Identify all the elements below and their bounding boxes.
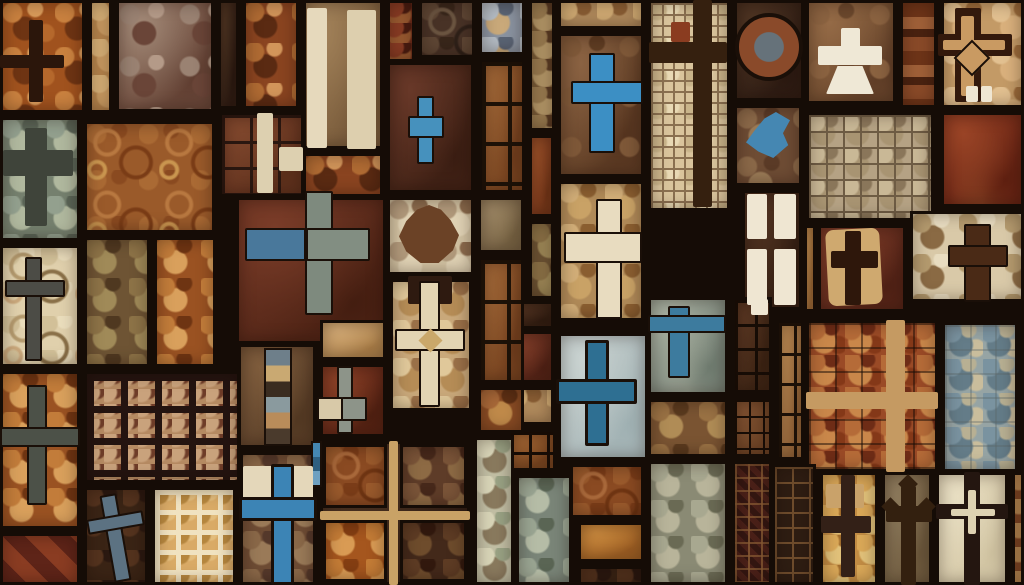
- swirl-cross-arm: [5, 280, 65, 297]
- panel-rust-marble: [941, 112, 1024, 207]
- white-nub: [751, 299, 768, 315]
- tile-cross-stem: [693, 0, 712, 207]
- panel-quad-br: [400, 520, 467, 582]
- cream-bar-right: [347, 10, 376, 149]
- panel-pebble-mosaic: [648, 461, 728, 585]
- panel-dark-trellis: [772, 464, 816, 585]
- small-blue-cross-arm: [408, 116, 444, 138]
- window-pane-1: [747, 194, 767, 239]
- panel-olive-floral: [84, 237, 150, 367]
- slate-cross-arm: [3, 150, 73, 176]
- bottom-blue-cross-arm: [239, 497, 317, 521]
- window-pane-2: [774, 194, 796, 239]
- panel-rust-floral-mid: [154, 237, 216, 367]
- budded-cross-stem: [901, 486, 916, 585]
- panel-orange-cube: [578, 522, 644, 562]
- big-slate-cross-arm-blue: [245, 228, 306, 261]
- brown-cross-arm: [948, 245, 1008, 267]
- slate-cross-stem: [25, 128, 47, 226]
- panel-rust-small-blocks: [508, 429, 556, 471]
- panel-brown-blocks: [732, 397, 772, 457]
- panel-rust-paisley-2: [570, 464, 644, 518]
- cream-bar-left: [307, 8, 327, 148]
- cream-latin-cross-arm: [564, 232, 642, 263]
- panel-olive-floral-sm: [529, 221, 554, 299]
- panel-rust-totem: [900, 0, 937, 108]
- window-pane-3: [747, 249, 767, 305]
- tile-rust-nub: [671, 22, 690, 42]
- panel-tan-block: [320, 320, 386, 360]
- terra-cross-h: [806, 392, 938, 409]
- panel-olive-floral-strip: [529, 0, 555, 131]
- panel-orange-strip-sm: [804, 225, 816, 312]
- panel-tan-band: [558, 0, 644, 29]
- panel-dark-floral-sm: [578, 566, 644, 585]
- window-pane-4: [774, 249, 796, 305]
- panel-rust-block: [529, 135, 554, 217]
- panel-beige-tile: [806, 112, 934, 221]
- mosaic-circle: [735, 13, 803, 81]
- patchwork-cross-collage: [0, 0, 1024, 585]
- tile-cross-arm: [649, 42, 727, 63]
- panel-brown-foliage: [648, 399, 728, 457]
- bracket-nub: [279, 147, 303, 171]
- panel-olive-block: [478, 197, 524, 253]
- panel-rust-floral-top: [243, 0, 299, 109]
- panel-slate-floral-top: [479, 0, 525, 55]
- panel-blue-leaf-mosaic: [942, 322, 1018, 472]
- bracket-bar: [257, 113, 273, 193]
- panel-rust-paisley: [84, 121, 215, 233]
- angel-cross-arm: [818, 46, 882, 65]
- panel-dark-strip: [218, 0, 239, 109]
- quad-mullion-h: [320, 511, 470, 520]
- gray-cross-arm-gray: [341, 397, 367, 421]
- swirl-cross-stem: [25, 257, 42, 361]
- panel-rust-mondrian: [478, 257, 524, 383]
- panel-quad-bl: [323, 520, 387, 582]
- panel-rust-blocks-col: [479, 59, 525, 193]
- blue-plus-arm: [648, 315, 726, 333]
- gray-cross-arm-cream: [317, 397, 343, 421]
- gold-cross-arm: [821, 516, 871, 533]
- left-big-cross-arm: [0, 427, 80, 447]
- panel-tan-blocks-col: [776, 320, 804, 460]
- panel-maroon-tartan: [732, 461, 772, 585]
- big-slate-cross-arm-gray: [306, 228, 370, 261]
- blue-latin-cross-arm: [571, 81, 643, 104]
- panel-slate-floral-b: [516, 475, 572, 585]
- tl-dark-cross-arm: [0, 55, 64, 68]
- pale-blue-cross-arm: [556, 379, 637, 404]
- scroll-cross-stem: [845, 231, 861, 305]
- panel-mauve-foliage: [116, 0, 214, 112]
- mini-pane-1: [966, 86, 978, 102]
- panel-maroon-argyle: [0, 533, 80, 585]
- bottom-blue-cross-stem: [271, 464, 294, 585]
- panel-dark-paisley: [419, 0, 475, 58]
- panel-tan-waffle: [152, 487, 236, 585]
- mini-pane-2: [981, 86, 992, 102]
- window-cross-inner-h: [951, 509, 995, 516]
- panel-rust-foliage: [478, 387, 524, 433]
- scroll-cross-arm: [831, 251, 878, 268]
- panel-dark-plaid: [84, 371, 240, 483]
- panel-rust-paisley-strip: [1012, 472, 1024, 585]
- panel-quad-tl: [323, 444, 387, 508]
- panel-maroon-speckle: [387, 0, 415, 62]
- panel-quad-tr: [400, 444, 467, 508]
- panel-tan-floral-strip: [89, 0, 112, 113]
- totem-stack: [264, 348, 292, 446]
- panel-sage-floral: [474, 437, 514, 585]
